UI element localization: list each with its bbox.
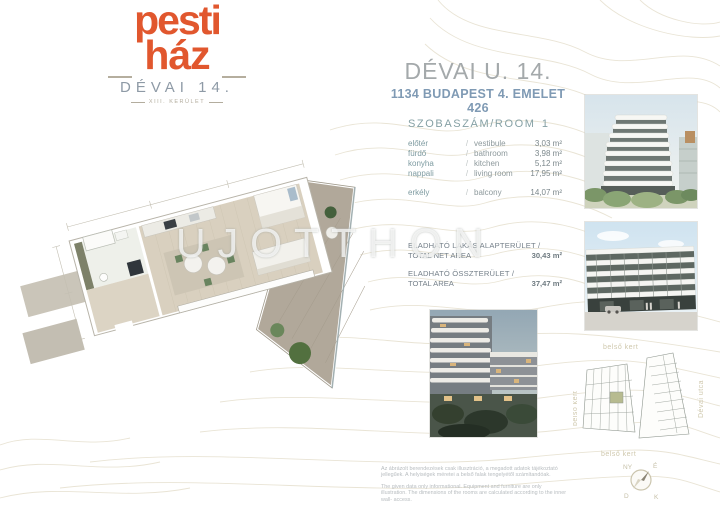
table-row: konyha / kitchen 5,12 m²	[408, 159, 562, 169]
page-title: DÉVAI U. 14.	[390, 58, 566, 85]
room-name-hu: nappali	[408, 169, 460, 179]
room-name-hu: fürdő	[408, 149, 460, 159]
room-name-en: living room	[474, 169, 518, 179]
compass-ne: É	[653, 461, 658, 470]
room-name-en: bathroom	[474, 149, 518, 159]
room-name-hu: előtér	[408, 139, 460, 149]
highlighted-unit	[610, 392, 623, 403]
building-photo-dusk	[430, 310, 537, 437]
total-label-en: TOTAL AREA	[408, 279, 454, 289]
street-label: Dévai utca	[698, 380, 705, 418]
room-count: 1	[542, 118, 548, 130]
room-name-en: kitchen	[474, 159, 518, 169]
total-value: 30,43 m²	[532, 251, 562, 261]
compass-icon: NY É D K	[617, 454, 665, 504]
room-table-header: SZOBASZÁM/ROOM 1	[408, 118, 562, 130]
district-dash-right	[209, 102, 223, 103]
separator: /	[460, 159, 474, 169]
compass-sw: D	[624, 493, 629, 500]
site-plan: belső kert belső kert belső kert Dévai u…	[573, 340, 713, 462]
table-row: nappali / living room 17,95 m²	[408, 169, 562, 179]
room-area: 3,98 m²	[518, 149, 562, 159]
building-photo-street	[585, 222, 697, 330]
room-table: SZOBASZÁM/ROOM 1 előtér / vestibule 3,03…	[408, 118, 562, 198]
total-value: 37,47 m²	[532, 279, 562, 289]
room-area: 14,07 m²	[518, 188, 562, 198]
separator: /	[460, 169, 474, 179]
room-area: 5,12 m²	[518, 159, 562, 169]
table-row: fürdő / bathroom 3,98 m²	[408, 149, 562, 159]
room-name-hu: erkély	[408, 188, 460, 198]
room-name-hu: konyha	[408, 159, 460, 169]
total-label-hu: ELADHATÓ ÖSSZTERÜLET /	[408, 269, 562, 279]
brochure-page: pesti ház DÉVAI 14. XIII. KERÜLET	[0, 0, 720, 510]
disclaimer-hu: Az ábrázolt berendezések csak illusztrác…	[381, 466, 567, 479]
room-name-en: vestibule	[474, 139, 518, 149]
room-table-title: SZOBASZÁM/ROOM	[408, 118, 536, 130]
building-photo-render	[585, 95, 697, 208]
total-area: ELADHATÓ ÖSSZTERÜLET / TOTAL AREA 37,47 …	[408, 269, 562, 289]
logo-district: XIII. KERÜLET	[108, 99, 246, 105]
separator: /	[460, 149, 474, 159]
logo-rule-right	[222, 76, 246, 78]
page-subtitle: 1134 BUDAPEST 4. EMELET 426	[390, 87, 566, 115]
logo: pesti ház DÉVAI 14. XIII. KERÜLET	[108, 4, 246, 105]
listing-header: DÉVAI U. 14. 1134 BUDAPEST 4. EMELET 426	[390, 58, 566, 115]
watermark: UJOTTHON	[176, 220, 495, 267]
garden-label-top: belső kert	[603, 344, 638, 351]
logo-project-name: DÉVAI 14.	[108, 79, 246, 96]
separator: /	[460, 139, 474, 149]
table-row: előtér / vestibule 3,03 m²	[408, 139, 562, 149]
separator: /	[460, 188, 474, 198]
compass-nw: NY	[623, 464, 633, 471]
floorplan-image	[22, 146, 382, 416]
district-label: XIII. KERÜLET	[149, 99, 205, 105]
room-area: 17,95 m²	[518, 169, 562, 179]
disclaimer: Az ábrázolt berendezések csak illusztrác…	[381, 466, 567, 508]
room-name-en: balcony	[474, 188, 518, 198]
compass-se: K	[654, 494, 659, 501]
logo-rule-left	[108, 76, 132, 78]
garden-label-left: belső kert	[573, 391, 579, 426]
logo-word-haz: ház	[108, 37, 246, 73]
district-dash-left	[131, 102, 145, 103]
table-row: erkély / balcony 14,07 m²	[408, 188, 562, 198]
disclaimer-en: The given data only informational. Equip…	[381, 484, 567, 503]
room-area: 3,03 m²	[518, 139, 562, 149]
